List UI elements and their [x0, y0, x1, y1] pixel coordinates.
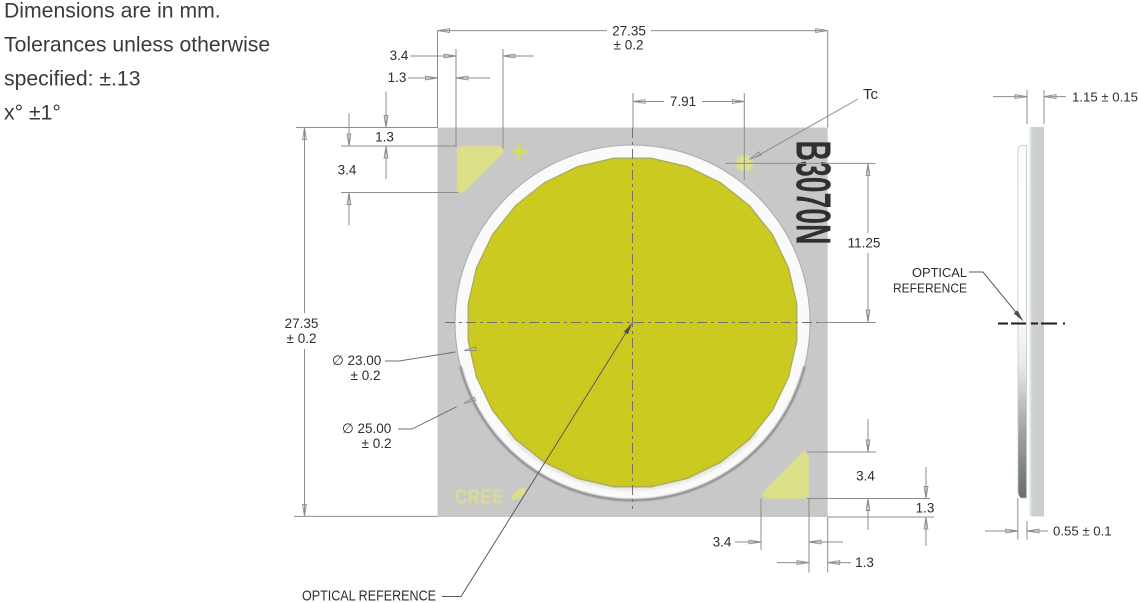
svg-text:B3070N: B3070N — [786, 141, 840, 245]
svg-text:specified: ±.13: specified: ±.13 — [4, 68, 140, 91]
svg-text:OPTICAL REFERENCE: OPTICAL REFERENCE — [302, 589, 436, 603]
svg-text:Dimensions are in mm.: Dimensions are in mm. — [4, 0, 221, 23]
svg-text:0.55 ± 0.1: 0.55 ± 0.1 — [1053, 524, 1112, 539]
svg-text:OPTICAL: OPTICAL — [912, 265, 967, 280]
svg-text:Tolerances unless otherwise: Tolerances unless otherwise — [4, 34, 270, 57]
svg-text:1.3: 1.3 — [916, 501, 935, 516]
svg-text:27.35: 27.35 — [285, 316, 319, 331]
svg-text:± 0.2: ± 0.2 — [362, 436, 392, 451]
svg-text:3.4: 3.4 — [713, 535, 732, 550]
svg-text:27.35: 27.35 — [612, 24, 646, 39]
svg-text:1.3: 1.3 — [388, 70, 407, 85]
svg-text:11.25: 11.25 — [848, 236, 881, 251]
svg-text:1.3: 1.3 — [855, 555, 874, 570]
svg-text:3.4: 3.4 — [338, 163, 357, 178]
svg-text:∅ 25.00: ∅ 25.00 — [342, 421, 391, 436]
svg-text:± 0.2: ± 0.2 — [351, 368, 381, 383]
svg-text:3.4: 3.4 — [390, 48, 409, 63]
svg-text:∅ 23.00: ∅ 23.00 — [332, 353, 381, 368]
svg-text:CREE: CREE — [455, 486, 504, 509]
svg-text:± 0.2: ± 0.2 — [287, 331, 317, 346]
svg-text:Tc: Tc — [863, 86, 879, 103]
svg-text:1.3: 1.3 — [375, 130, 394, 145]
svg-text:3.4: 3.4 — [856, 469, 875, 484]
svg-text:REFERENCE: REFERENCE — [893, 281, 967, 296]
svg-text:7.91: 7.91 — [670, 94, 696, 109]
svg-text:1.15 ± 0.15: 1.15 ± 0.15 — [1072, 89, 1138, 104]
svg-text:± 0.2: ± 0.2 — [614, 38, 644, 53]
svg-text:x° ±1°: x° ±1° — [4, 102, 61, 125]
